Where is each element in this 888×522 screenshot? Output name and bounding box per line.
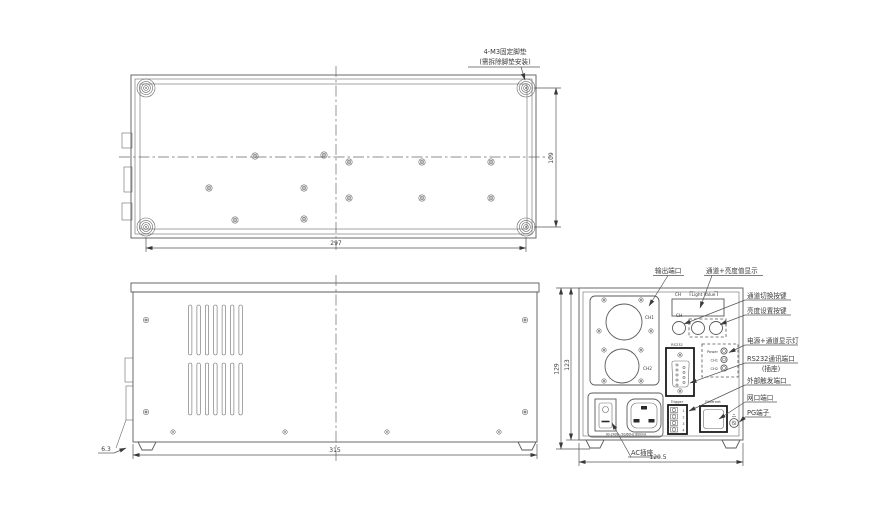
vent-slots-bottom xyxy=(189,363,243,415)
dim-rear-width-120_5: 120.5 xyxy=(579,443,743,466)
trigger-pin-4: 4 xyxy=(683,429,685,433)
drawing-canvas: 4-M3固定脚垫 (需拆除脚垫安装) 297 109 xyxy=(0,0,888,522)
ac-rating-label: 90-240V~50/60Hz 800mA xyxy=(606,433,647,437)
bottom-plate-screws xyxy=(206,152,494,223)
callout-ch-switch-label: 通道切换按键 xyxy=(747,291,787,300)
top-view: 4-M3固定脚垫 (需拆除脚垫安装) 297 109 xyxy=(119,47,561,252)
dim-297-label: 297 xyxy=(330,240,342,247)
foot-left xyxy=(138,442,156,450)
rear-foot-left xyxy=(586,440,604,448)
brightness-down-button xyxy=(710,322,723,335)
callout-brightness: 亮度设置按键 xyxy=(720,306,791,325)
brightness-up-button xyxy=(692,322,705,335)
db9-pins xyxy=(676,364,685,386)
callout-pg-label: PG端子 xyxy=(747,408,770,417)
dim-315-label: 315 xyxy=(329,447,341,454)
ac-socket xyxy=(627,399,661,432)
trigger-positions xyxy=(671,408,678,433)
trigger-pin-2: 2 xyxy=(683,416,685,420)
ch2-label: CH2 xyxy=(643,366,652,372)
channel-buttons: CH xyxy=(673,313,727,337)
output-connector-ch1 xyxy=(606,304,642,340)
ch1-label: CH1 xyxy=(645,315,654,321)
side-protrusions xyxy=(116,358,133,448)
channel-switch-button xyxy=(673,322,686,335)
led-ch2-label: CH2 xyxy=(711,367,719,371)
led-ch1-label: CH1 xyxy=(711,359,719,363)
callout-display: 通道+亮度值显示 xyxy=(700,266,763,308)
foot-right xyxy=(518,442,536,450)
callout-output-port: 输出端口 xyxy=(649,266,684,306)
dim-6-3-label: 6.3 xyxy=(101,446,111,453)
callout-leds: 电源+通道显示灯 xyxy=(729,336,799,353)
side-screws xyxy=(143,317,527,434)
rear-foot-right xyxy=(722,440,740,448)
callout-ethernet-label: 网口端口 xyxy=(747,393,773,402)
foot-note-line2: (需拆除脚垫安装) xyxy=(479,57,530,66)
trigger-pin-1: 1 xyxy=(683,409,685,413)
rs232-connector: RS232 xyxy=(666,343,694,396)
button-ch-label: CH xyxy=(676,313,682,319)
trigger-terminal: Trigger 1 2 3 4 xyxy=(668,400,687,434)
dim-129-label: 129 xyxy=(554,363,561,375)
vent-slots-top xyxy=(189,305,243,355)
ac-inlet-box: 90-240V~50/60Hz 800mA xyxy=(588,393,663,437)
callout-leds-label: 电源+通道显示灯 xyxy=(747,336,799,345)
callout-display-label: 通道+亮度值显示 xyxy=(706,266,758,275)
callout-rs232-label1: RS232通讯端口 xyxy=(747,354,795,363)
switch-off-symbol xyxy=(603,407,609,413)
rear-view: CH1 CH2 CH Light Value CH RS232 xyxy=(554,266,800,466)
dim-height-109: 109 xyxy=(534,88,561,227)
callout-brightness-label: 亮度设置按键 xyxy=(747,306,787,315)
output-port-plate: CH1 CH2 xyxy=(590,296,659,385)
callout-output-label: 输出端口 xyxy=(655,266,681,275)
callout-trigger-label: 外部触发端口 xyxy=(747,376,787,385)
display-window: CH Light Value xyxy=(672,292,724,317)
trigger-pin-3: 3 xyxy=(683,422,685,426)
foot-note-line1: 4-M3固定脚垫 xyxy=(484,47,527,56)
side-connector-tabs xyxy=(122,133,132,220)
output-connector-ch2 xyxy=(605,349,639,383)
technical-drawing-page: 4-M3固定脚垫 (需拆除脚垫安装) 297 109 xyxy=(0,0,888,522)
trigger-label: Trigger xyxy=(670,400,684,404)
rs232-label: RS232 xyxy=(671,343,683,347)
led-power-label: Power xyxy=(707,350,718,354)
dim-109-label: 109 xyxy=(548,152,555,164)
pg-terminal xyxy=(730,415,739,428)
display-ch-label: CH xyxy=(675,292,681,298)
dim-123-label: 123 xyxy=(564,359,571,371)
side-view: 6.3 315 xyxy=(98,275,539,461)
callout-rs232-label2: (插座) xyxy=(762,364,780,373)
db9-shell xyxy=(672,361,689,387)
dim-length-315: 315 xyxy=(133,444,537,459)
dim-rear-height-inner-123: 123 xyxy=(564,288,579,440)
dim-rear-height-outer-129: 129 xyxy=(554,288,591,449)
callout-ac-label: AC插座 xyxy=(631,448,654,457)
dim-foot-6_3: 6.3 xyxy=(98,446,126,453)
callout-pg: PG端子 xyxy=(740,408,772,422)
power-switch xyxy=(595,399,616,431)
